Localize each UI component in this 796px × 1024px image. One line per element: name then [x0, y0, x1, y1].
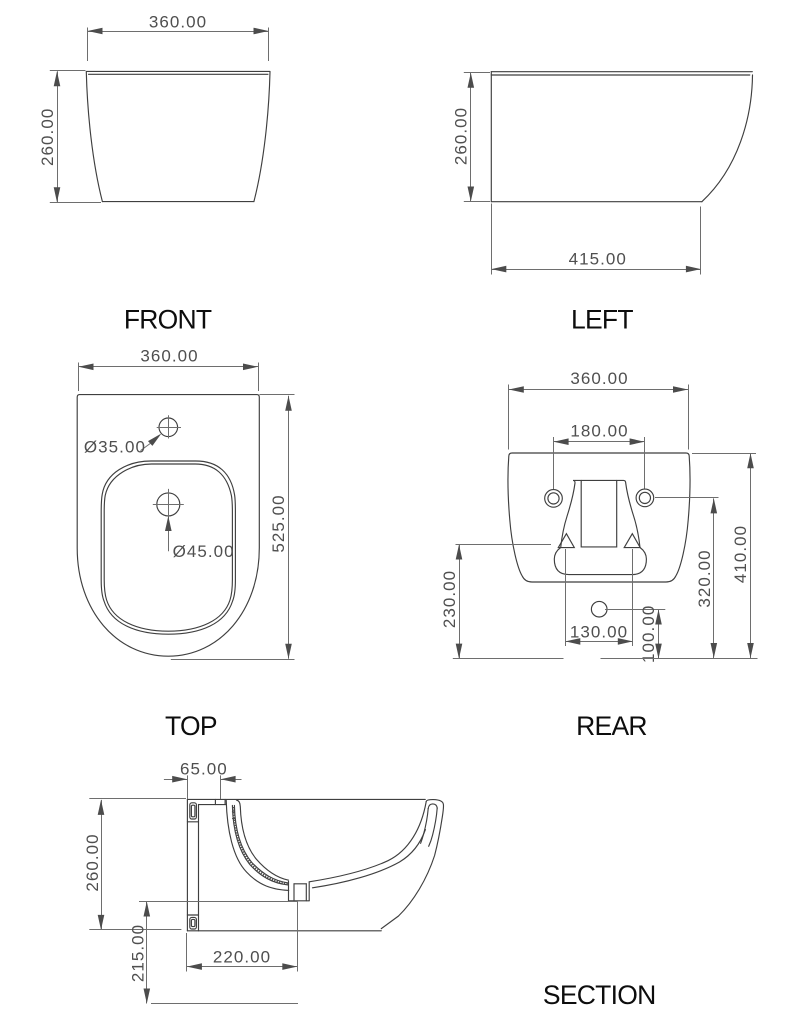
svg-text:525.00: 525.00 — [269, 494, 288, 552]
svg-text:SECTION: SECTION — [543, 980, 656, 1010]
svg-text:Ø45.00: Ø45.00 — [173, 542, 235, 561]
svg-text:360.00: 360.00 — [140, 347, 198, 366]
svg-text:215.00: 215.00 — [128, 924, 147, 982]
svg-text:Ø35.00: Ø35.00 — [84, 437, 146, 456]
svg-text:100.00: 100.00 — [639, 605, 658, 663]
svg-text:360.00: 360.00 — [149, 12, 207, 31]
svg-text:LEFT: LEFT — [571, 304, 633, 334]
svg-text:REAR: REAR — [576, 711, 647, 741]
svg-text:260.00: 260.00 — [83, 833, 102, 891]
svg-text:260.00: 260.00 — [452, 107, 471, 165]
svg-text:230.00: 230.00 — [440, 570, 459, 628]
svg-text:410.00: 410.00 — [731, 525, 750, 583]
svg-text:180.00: 180.00 — [570, 422, 628, 441]
svg-text:415.00: 415.00 — [569, 249, 627, 268]
svg-text:260.00: 260.00 — [38, 108, 57, 166]
svg-text:220.00: 220.00 — [213, 947, 271, 966]
svg-text:360.00: 360.00 — [570, 369, 628, 388]
svg-text:TOP: TOP — [165, 711, 217, 741]
svg-text:130.00: 130.00 — [570, 623, 628, 642]
svg-text:320.00: 320.00 — [695, 549, 714, 607]
svg-text:FRONT: FRONT — [124, 304, 212, 334]
svg-text:65.00: 65.00 — [180, 760, 228, 779]
